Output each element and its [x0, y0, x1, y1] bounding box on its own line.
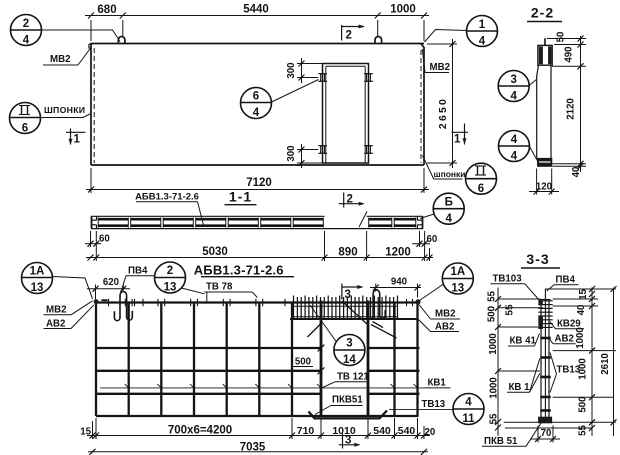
svg-text:20: 20: [425, 427, 436, 438]
svg-text:40: 40: [576, 305, 587, 316]
svg-text:3: 3: [345, 435, 351, 447]
svg-text:1200: 1200: [385, 247, 411, 259]
svg-text:2-2: 2-2: [531, 5, 554, 21]
svg-text:ПКВ 51: ПКВ 51: [484, 436, 518, 447]
svg-text:АБВ1.3-71-2.6: АБВ1.3-71-2.6: [135, 192, 199, 203]
svg-text:1000: 1000: [390, 4, 416, 16]
svg-text:3: 3: [346, 338, 352, 350]
svg-text:МВ2: МВ2: [430, 62, 450, 73]
svg-text:300: 300: [286, 145, 297, 161]
svg-text:55: 55: [489, 413, 500, 424]
svg-text:120: 120: [536, 182, 552, 193]
svg-text:1: 1: [479, 19, 486, 31]
svg-text:620: 620: [103, 277, 119, 288]
svg-text:1: 1: [74, 134, 81, 146]
svg-text:890: 890: [338, 247, 357, 259]
svg-text:7035: 7035: [240, 442, 266, 454]
svg-text:490: 490: [564, 46, 575, 62]
svg-text:940: 940: [391, 277, 407, 288]
svg-text:2: 2: [167, 265, 173, 277]
svg-text:1000: 1000: [578, 358, 589, 380]
svg-text:АВ2: АВ2: [555, 334, 574, 345]
svg-text:60: 60: [427, 234, 438, 245]
svg-text:КВ 41: КВ 41: [510, 336, 537, 347]
svg-text:4: 4: [511, 151, 518, 163]
svg-text:1: 1: [454, 134, 461, 146]
svg-text:540: 540: [398, 425, 416, 437]
svg-text:2: 2: [346, 30, 352, 42]
svg-text:2120: 2120: [566, 98, 577, 120]
svg-text:15: 15: [578, 289, 589, 300]
svg-text:5440: 5440: [243, 4, 269, 16]
svg-text:6: 6: [478, 183, 484, 195]
svg-text:7120: 7120: [246, 177, 272, 189]
svg-text:ТВ 78: ТВ 78: [206, 282, 233, 293]
svg-text:1А: 1А: [450, 266, 465, 278]
svg-text:500: 500: [578, 396, 589, 412]
svg-text:11: 11: [462, 413, 475, 425]
svg-text:13: 13: [451, 283, 464, 295]
svg-text:13: 13: [164, 282, 177, 294]
svg-text:4: 4: [465, 397, 472, 409]
svg-text:15: 15: [80, 427, 91, 438]
svg-text:4: 4: [511, 134, 518, 146]
svg-text:500: 500: [295, 356, 311, 367]
svg-text:13: 13: [31, 282, 44, 294]
svg-text:500: 500: [487, 306, 498, 322]
svg-text:40: 40: [571, 167, 582, 178]
svg-text:ПКВ51: ПКВ51: [332, 395, 363, 406]
svg-text:6: 6: [253, 91, 259, 103]
svg-text:Б: Б: [445, 197, 453, 209]
svg-text:4: 4: [479, 36, 486, 48]
svg-text:3: 3: [345, 289, 351, 301]
svg-text:4: 4: [510, 91, 517, 103]
svg-text:14: 14: [343, 354, 356, 366]
svg-text:300: 300: [286, 62, 297, 78]
svg-text:2: 2: [347, 194, 353, 206]
svg-text:АВ2: АВ2: [435, 322, 454, 333]
svg-text:МВ2: МВ2: [50, 54, 70, 65]
svg-text:1000: 1000: [575, 327, 586, 349]
svg-text:ТВ 121: ТВ 121: [337, 372, 369, 383]
svg-text:70: 70: [541, 428, 552, 439]
svg-text:2: 2: [23, 18, 29, 30]
svg-text:4: 4: [23, 35, 30, 47]
svg-text:1-1: 1-1: [229, 189, 252, 205]
svg-text:700х6=4200: 700х6=4200: [168, 425, 232, 437]
svg-text:3: 3: [510, 74, 516, 86]
svg-text:55: 55: [487, 291, 498, 302]
svg-text:шпонки: шпонки: [434, 169, 466, 179]
svg-text:55: 55: [505, 304, 516, 316]
svg-text:КВ1: КВ1: [428, 378, 447, 389]
svg-text:ПВ4: ПВ4: [556, 275, 576, 286]
svg-text:ПВ4: ПВ4: [128, 266, 148, 277]
svg-text:2610: 2610: [600, 353, 611, 375]
svg-text:4: 4: [445, 213, 452, 225]
svg-text:ТВ103: ТВ103: [493, 274, 523, 285]
svg-text:1000: 1000: [488, 333, 499, 355]
svg-text:710: 710: [297, 425, 315, 437]
svg-text:МВ2: МВ2: [435, 309, 455, 320]
svg-text:6: 6: [22, 123, 28, 135]
svg-text:1А: 1А: [30, 266, 45, 278]
svg-text:55: 55: [578, 425, 589, 436]
svg-text:КВ 1: КВ 1: [509, 382, 531, 393]
svg-text:ТВ13: ТВ13: [422, 399, 446, 410]
svg-text:МВ2: МВ2: [46, 305, 66, 316]
svg-text:3-3: 3-3: [526, 251, 549, 267]
svg-text:5030: 5030: [202, 246, 228, 258]
svg-text:50: 50: [556, 32, 567, 43]
svg-text:ШПОНКИ: ШПОНКИ: [44, 105, 85, 115]
svg-text:680: 680: [97, 4, 116, 16]
svg-text:540: 540: [373, 425, 391, 437]
svg-text:АВ2: АВ2: [46, 319, 65, 330]
svg-text:АБВ1.3-71-2.6: АБВ1.3-71-2.6: [194, 263, 284, 278]
svg-text:1000: 1000: [489, 377, 500, 399]
svg-text:4: 4: [253, 107, 260, 119]
svg-text:60: 60: [99, 234, 110, 245]
svg-text:2650: 2650: [437, 97, 449, 129]
